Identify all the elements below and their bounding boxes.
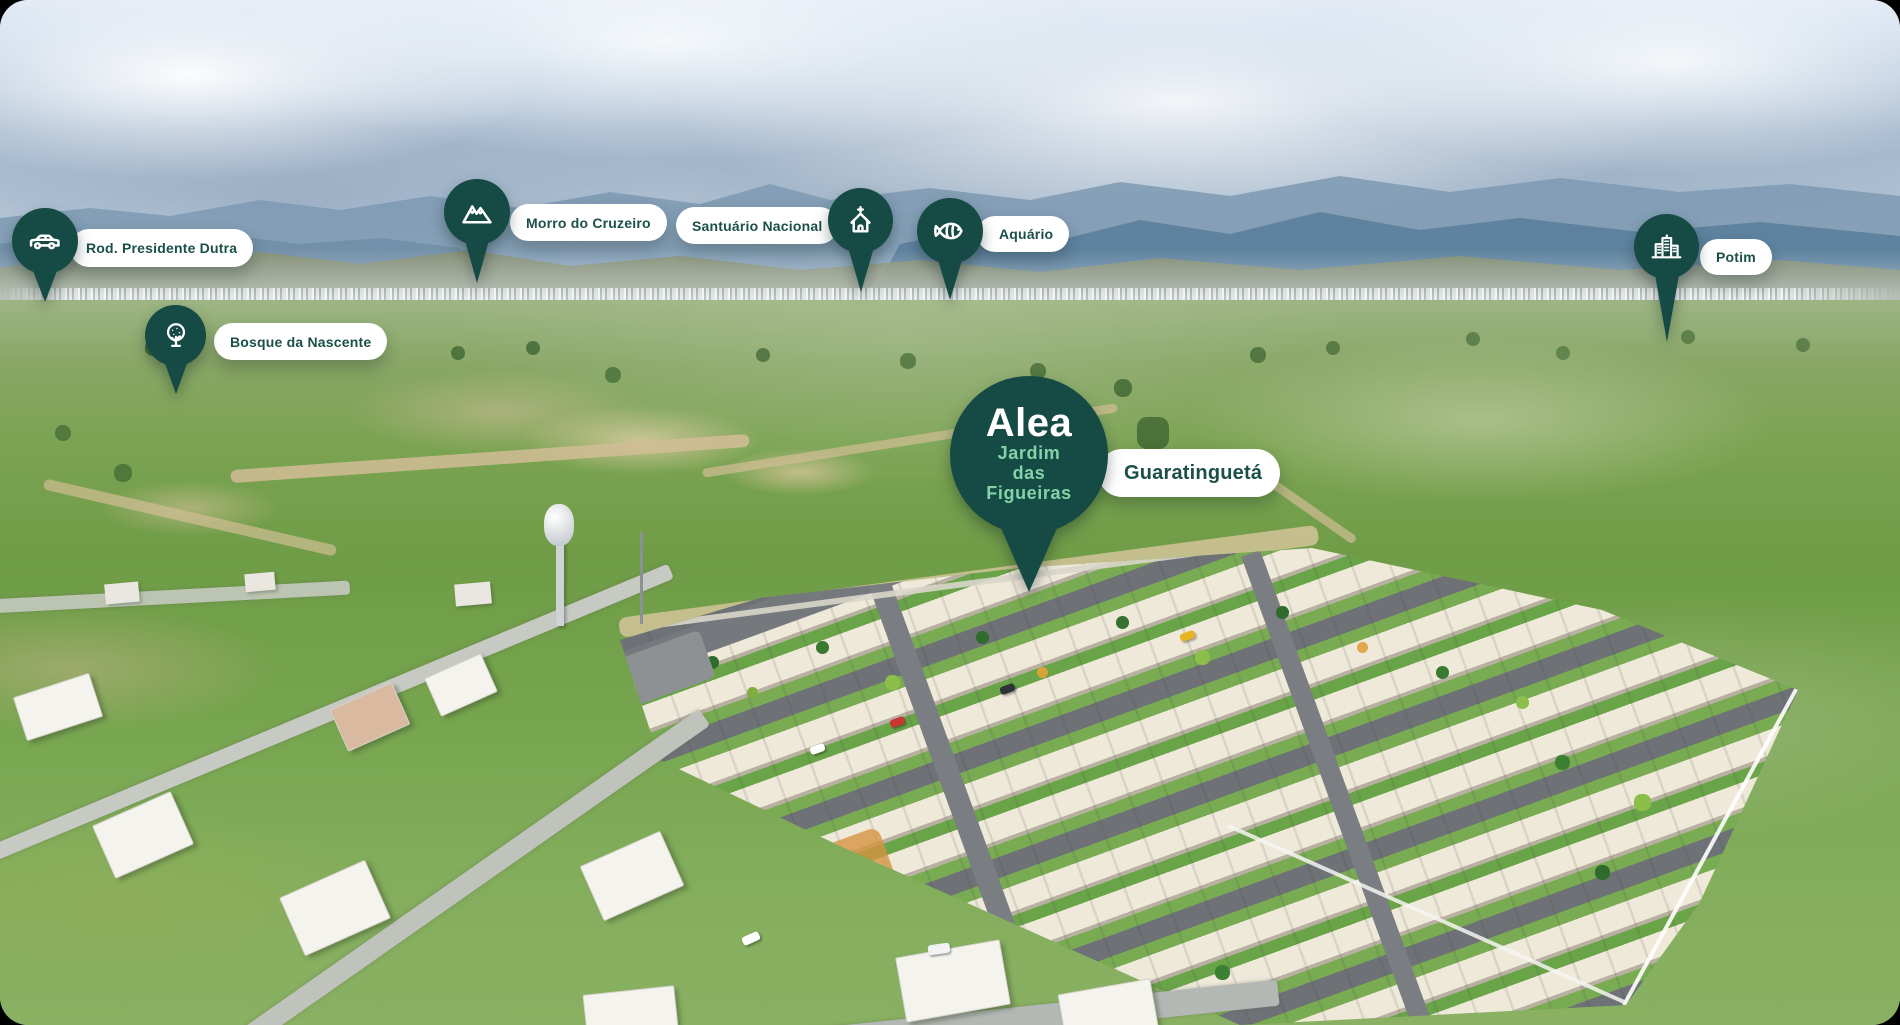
tree-clusters (0, 0, 6, 6)
map-pin (828, 188, 893, 253)
marker-label-pill: Potim (1700, 239, 1772, 275)
map-pin (145, 305, 206, 366)
mountain-icon (458, 193, 496, 231)
marker-label-pill: Aquário (977, 216, 1069, 252)
car (889, 716, 906, 729)
city-buildings-icon (1648, 228, 1685, 265)
marker-label: Potim (1716, 249, 1756, 265)
main-map-pin: Alea Jardim das Figueiras (950, 376, 1108, 534)
marker-label: Rod. Presidente Dutra (86, 240, 237, 256)
map-pin (1634, 214, 1699, 279)
city-label: Guaratinguetá (1124, 462, 1262, 485)
car (1179, 630, 1196, 643)
water-tower (556, 540, 564, 626)
antenna-tower (640, 532, 643, 624)
map-pin (444, 179, 510, 245)
shed (244, 572, 275, 593)
shed (454, 581, 492, 606)
cross-street (1241, 550, 1431, 1025)
car (809, 743, 826, 756)
marker-label-pill: Rod. Presidente Dutra (70, 229, 253, 267)
map-pin (12, 208, 78, 274)
marker-label-pill: Morro do Cruzeiro (510, 204, 667, 241)
alea-logo: Alea (986, 403, 1073, 443)
marker-label-pill: Santuário Nacional (676, 207, 838, 244)
shed (104, 582, 140, 605)
car-icon (26, 222, 64, 260)
perimeter-fence (1227, 824, 1628, 1005)
car (999, 683, 1016, 696)
tree-icon (159, 319, 193, 353)
map-pin (917, 198, 983, 264)
water-tower-tank (544, 504, 574, 546)
aerial-site-map: Rod. Presidente Dutra Bosque da Nascente (0, 0, 1900, 1025)
city-label-pill: Guaratinguetá (1098, 449, 1280, 497)
project-name: Jardim das Figueiras (986, 443, 1071, 503)
marker-label: Bosque da Nascente (230, 334, 371, 350)
marker-label-pill: Bosque da Nascente (214, 323, 387, 360)
project-name-line3: Figueiras (986, 483, 1071, 503)
fish-icon (931, 212, 969, 250)
marker-label: Morro do Cruzeiro (526, 215, 651, 231)
marker-label: Santuário Nacional (692, 218, 822, 234)
church-icon (842, 202, 879, 239)
project-name-line2: das (986, 463, 1071, 483)
marker-label: Aquário (999, 226, 1053, 242)
project-name-line1: Jardim (986, 443, 1071, 463)
